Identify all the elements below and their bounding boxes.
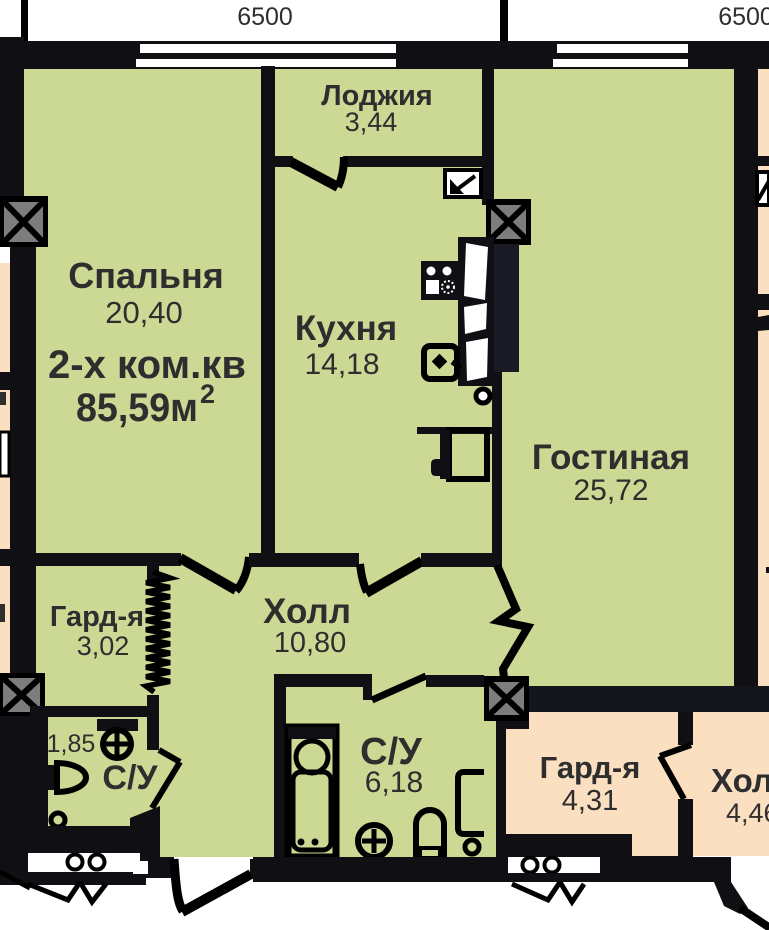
svg-text:Кухня: Кухня — [295, 309, 397, 348]
svg-text:3,44: 3,44 — [345, 107, 398, 137]
svg-text:3,02: 3,02 — [77, 631, 130, 661]
svg-text:4,46: 4,46 — [726, 798, 769, 828]
svg-text:6500: 6500 — [718, 3, 769, 31]
svg-text:6500: 6500 — [237, 3, 293, 31]
svg-text:6,18: 6,18 — [365, 766, 423, 799]
svg-text:Хол: Хол — [711, 762, 769, 799]
svg-text:1,85: 1,85 — [47, 730, 96, 758]
svg-text:Спальня: Спальня — [68, 255, 224, 296]
svg-text:14,18: 14,18 — [304, 348, 379, 381]
svg-text:Гард-я: Гард-я — [50, 601, 144, 633]
svg-text:20,40: 20,40 — [105, 295, 183, 330]
svg-text:25,72: 25,72 — [573, 474, 648, 507]
svg-text:10,80: 10,80 — [274, 627, 347, 659]
svg-text:2-х ком.кв: 2-х ком.кв — [48, 343, 246, 387]
svg-text:С/У: С/У — [102, 759, 158, 797]
svg-text:85,59м: 85,59м — [76, 386, 198, 430]
svg-text:2: 2 — [200, 379, 215, 409]
svg-text:Холл: Холл — [263, 592, 351, 631]
svg-text:Гостиная: Гостиная — [532, 438, 690, 477]
svg-text:4,31: 4,31 — [562, 785, 618, 817]
svg-text:Гард-я: Гард-я — [540, 750, 641, 785]
